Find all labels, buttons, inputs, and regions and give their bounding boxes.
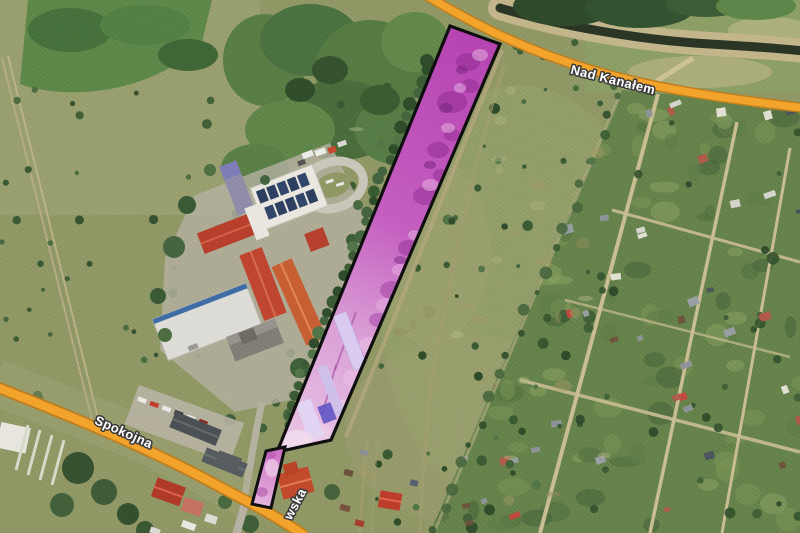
map-viewport[interactable]: Nad Kanałem Spokojna wska [0,0,800,533]
satellite-map[interactable]: Nad Kanałem Spokojna wska [0,0,800,533]
